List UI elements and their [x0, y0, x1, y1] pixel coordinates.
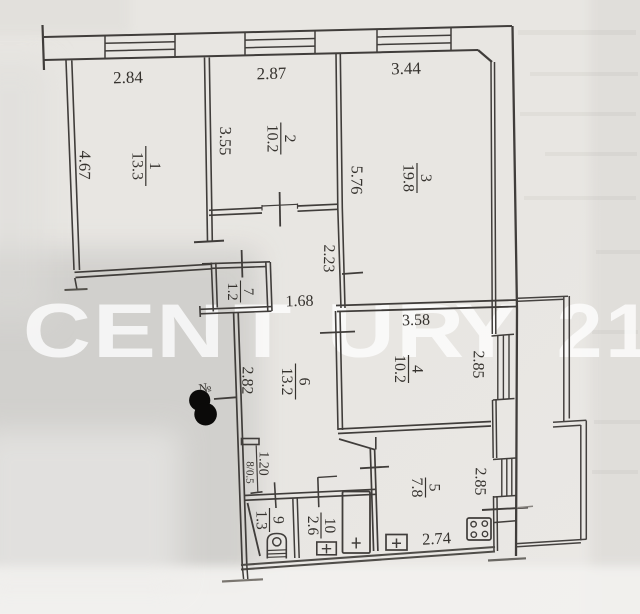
svg-text:3.55: 3.55 [216, 126, 236, 155]
svg-text:7.8: 7.8 [408, 478, 425, 498]
svg-text:3: 3 [417, 174, 434, 182]
svg-text:3.44: 3.44 [391, 59, 422, 79]
svg-text:2.23: 2.23 [320, 244, 337, 272]
svg-text:8/0.5: 8/0.5 [243, 461, 255, 484]
svg-text:5.76: 5.76 [347, 165, 367, 194]
svg-text:2.6: 2.6 [304, 516, 321, 536]
svg-text:2.74: 2.74 [422, 528, 452, 548]
svg-text:13.3: 13.3 [128, 152, 145, 180]
svg-text:2.84: 2.84 [113, 68, 144, 88]
svg-text:4: 4 [409, 365, 426, 373]
svg-text:5: 5 [426, 484, 443, 492]
svg-text:2.87: 2.87 [256, 64, 287, 84]
svg-text:4.67: 4.67 [75, 150, 95, 179]
svg-text:3.58: 3.58 [402, 312, 430, 330]
svg-text:19.8: 19.8 [400, 164, 417, 192]
svg-text:13.2: 13.2 [278, 368, 295, 396]
svg-text:2: 2 [281, 135, 298, 143]
svg-text:10.2: 10.2 [391, 355, 408, 383]
svg-text:1.2: 1.2 [224, 282, 240, 300]
svg-text:1: 1 [146, 162, 163, 170]
svg-text:9: 9 [270, 516, 287, 524]
svg-text:2.85: 2.85 [469, 350, 486, 378]
svg-text:7: 7 [240, 288, 256, 295]
svg-text:2.82: 2.82 [238, 366, 255, 394]
svg-text:2.85: 2.85 [471, 467, 488, 495]
svg-text:10.2: 10.2 [263, 125, 280, 153]
svg-text:10: 10 [321, 518, 338, 534]
svg-text:6: 6 [296, 378, 313, 386]
svg-text:1.68: 1.68 [285, 293, 313, 311]
svg-text:1.3: 1.3 [253, 510, 270, 530]
svg-text:1.20: 1.20 [255, 451, 270, 476]
